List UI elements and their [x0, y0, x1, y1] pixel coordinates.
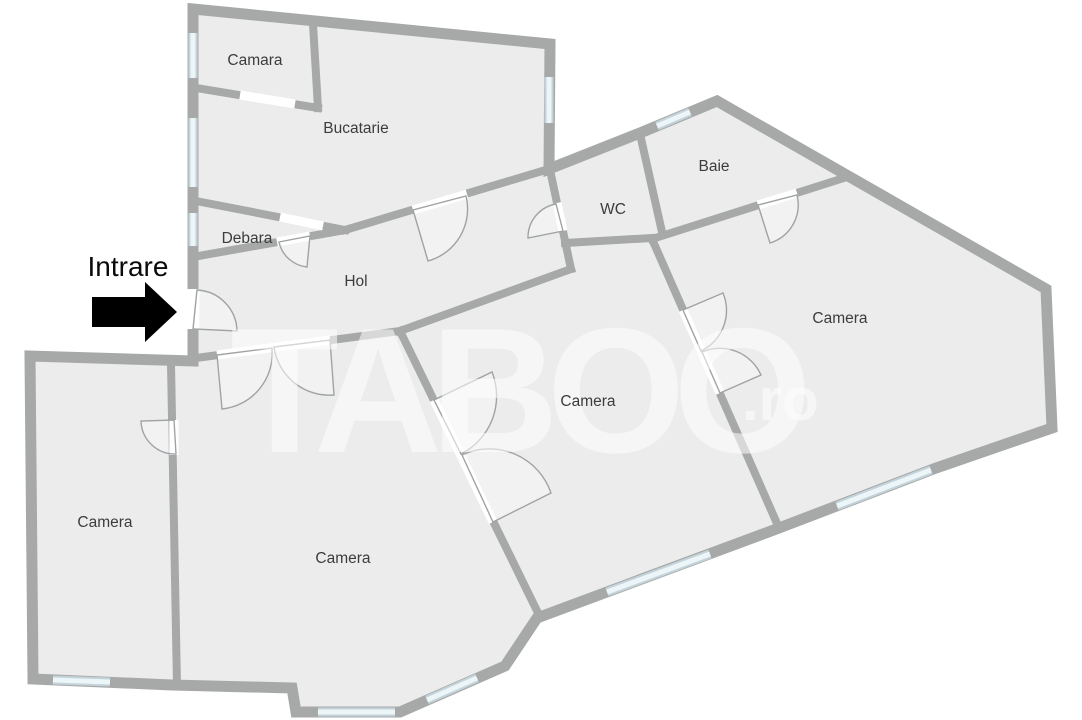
room-label-baie: Baie [698, 158, 729, 175]
room-label-camera-bottom: Camera [315, 550, 371, 567]
entrance-label: Intrare [88, 251, 169, 282]
room-label-wc: WC [600, 201, 626, 218]
room-label-hol: Hol [344, 273, 367, 290]
watermark-text: TABOO [230, 291, 804, 490]
room-label-camara: Camara [227, 52, 283, 69]
entrance-annotation: Intrare [88, 251, 177, 342]
floor-plan-page: TABOO .ro Camara Bucatarie Debara Hol WC… [0, 0, 1082, 720]
room-label-bucatarie: Bucatarie [323, 120, 388, 137]
watermark-suffix: .ro [742, 366, 819, 433]
floor-plan: TABOO .ro Camara Bucatarie Debara Hol WC… [0, 0, 1082, 720]
room-label-camera-left: Camera [77, 514, 133, 531]
entrance-arrow-icon [92, 282, 177, 342]
room-label-camera-right: Camera [812, 310, 868, 327]
watermark: TABOO .ro [230, 291, 818, 490]
room-label-camera-middle: Camera [560, 393, 616, 410]
room-label-debara: Debara [222, 230, 273, 247]
